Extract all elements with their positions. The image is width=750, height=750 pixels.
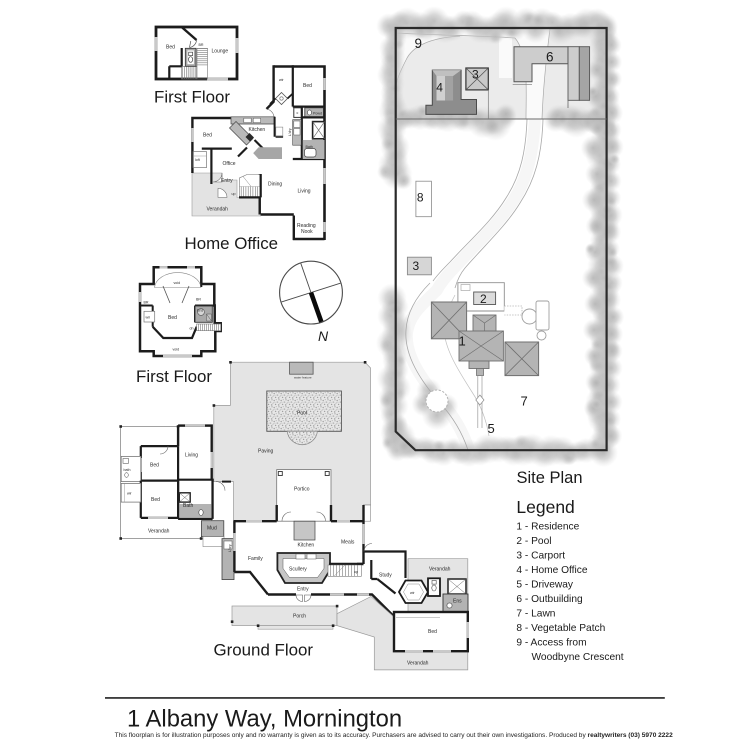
svg-text:7 - Lawn: 7 - Lawn [516, 609, 555, 620]
svg-text:Entry: Entry [297, 587, 309, 593]
svg-text:Woodbyne Crescent: Woodbyne Crescent [532, 652, 624, 663]
svg-text:Bed: Bed [166, 45, 175, 51]
svg-text:Pool: Pool [297, 411, 307, 417]
svg-text:2: 2 [480, 292, 487, 306]
svg-text:3: 3 [472, 68, 479, 82]
svg-text:First Floor: First Floor [136, 367, 212, 386]
svg-text:9: 9 [415, 36, 423, 51]
svg-text:Bed: Bed [151, 497, 160, 503]
svg-text:Study: Study [379, 573, 392, 579]
svg-text:Family: Family [248, 556, 263, 562]
svg-text:Dining: Dining [268, 182, 282, 188]
svg-text:Mud: Mud [207, 526, 217, 532]
svg-text:Bed: Bed [203, 133, 212, 139]
svg-text:Bed: Bed [303, 83, 312, 89]
svg-text:Entry: Entry [221, 178, 233, 184]
svg-text:Bath: Bath [183, 503, 194, 509]
svg-text:Verandah: Verandah [429, 567, 451, 573]
svg-text:Ens: Ens [197, 309, 203, 313]
svg-text:Kitchen: Kitchen [249, 127, 266, 133]
svg-text:Verandah: Verandah [407, 661, 429, 667]
svg-text:Verandah: Verandah [148, 529, 170, 535]
svg-text:Bath: Bath [306, 145, 313, 149]
svg-text:L'dry: L'dry [288, 128, 292, 136]
svg-text:void: void [174, 281, 181, 285]
svg-text:Portico: Portico [294, 487, 310, 493]
svg-text:Home Office: Home Office [185, 234, 279, 253]
svg-text:wir: wir [127, 492, 132, 496]
svg-text:1 - Residence: 1 - Residence [516, 522, 579, 533]
svg-text:1: 1 [459, 334, 466, 349]
svg-text:4 - Home Office: 4 - Home Office [516, 565, 587, 576]
svg-text:Verandah: Verandah [207, 207, 229, 213]
svg-text:Porch: Porch [293, 614, 306, 620]
svg-text:1 Albany Way, Mornington: 1 Albany Way, Mornington [127, 706, 402, 733]
svg-text:void: void [173, 348, 180, 352]
svg-text:3 - Carport: 3 - Carport [516, 551, 565, 562]
svg-text:up: up [354, 570, 358, 574]
svg-text:wir: wir [279, 78, 284, 82]
svg-text:BR: BR [199, 43, 204, 47]
svg-text:Ground Floor: Ground Floor [214, 641, 314, 660]
svg-text:This floorplan is for illustra: This floorplan is for illustration purpo… [115, 732, 673, 739]
svg-text:Kitchen: Kitchen [298, 543, 315, 549]
svg-text:8 - Vegetable Patch: 8 - Vegetable Patch [516, 623, 605, 634]
svg-text:Bed: Bed [150, 463, 159, 469]
svg-text:Office: Office [223, 161, 236, 167]
svg-text:Living: Living [185, 453, 198, 459]
svg-text:2 - Pool: 2 - Pool [516, 536, 551, 547]
svg-text:up: up [232, 192, 236, 196]
svg-text:6: 6 [546, 50, 554, 65]
svg-text:3: 3 [413, 259, 420, 273]
svg-text:c: c [297, 111, 299, 115]
svg-text:Bed: Bed [168, 315, 177, 321]
svg-text:Lounge: Lounge [212, 48, 229, 54]
svg-text:L'bry: L'bry [228, 544, 232, 552]
svg-text:Legend: Legend [516, 497, 574, 517]
svg-text:bath: bath [124, 468, 131, 472]
svg-text:4: 4 [436, 80, 443, 94]
svg-text:6 - Outbuilding: 6 - Outbuilding [516, 594, 583, 605]
svg-text:Powd: Powd [313, 111, 322, 115]
svg-text:Ens: Ens [453, 599, 462, 605]
svg-text:Bed: Bed [428, 629, 437, 635]
svg-text:Nook: Nook [301, 229, 313, 235]
svg-text:Scullery: Scullery [289, 567, 307, 573]
svg-text:7: 7 [521, 394, 528, 409]
svg-text:wir: wir [410, 591, 415, 595]
svg-text:Paving: Paving [258, 449, 274, 455]
svg-text:5: 5 [488, 421, 495, 436]
svg-text:5 - Driveway: 5 - Driveway [516, 580, 574, 591]
svg-text:loft: loft [195, 158, 200, 162]
svg-text:8: 8 [417, 191, 424, 205]
svg-text:9 - Access from: 9 - Access from [516, 638, 586, 649]
svg-text:N: N [318, 328, 329, 344]
svg-text:Living: Living [298, 189, 311, 195]
svg-text:First Floor: First Floor [154, 87, 230, 106]
svg-text:wir: wir [146, 316, 151, 320]
svg-text:Site Plan: Site Plan [517, 469, 583, 487]
svg-text:BR: BR [196, 298, 201, 302]
svg-text:BR: BR [144, 301, 149, 305]
svg-text:dn: dn [190, 327, 194, 331]
svg-text:water feature: water feature [294, 376, 312, 380]
svg-text:Meals: Meals [341, 540, 355, 546]
